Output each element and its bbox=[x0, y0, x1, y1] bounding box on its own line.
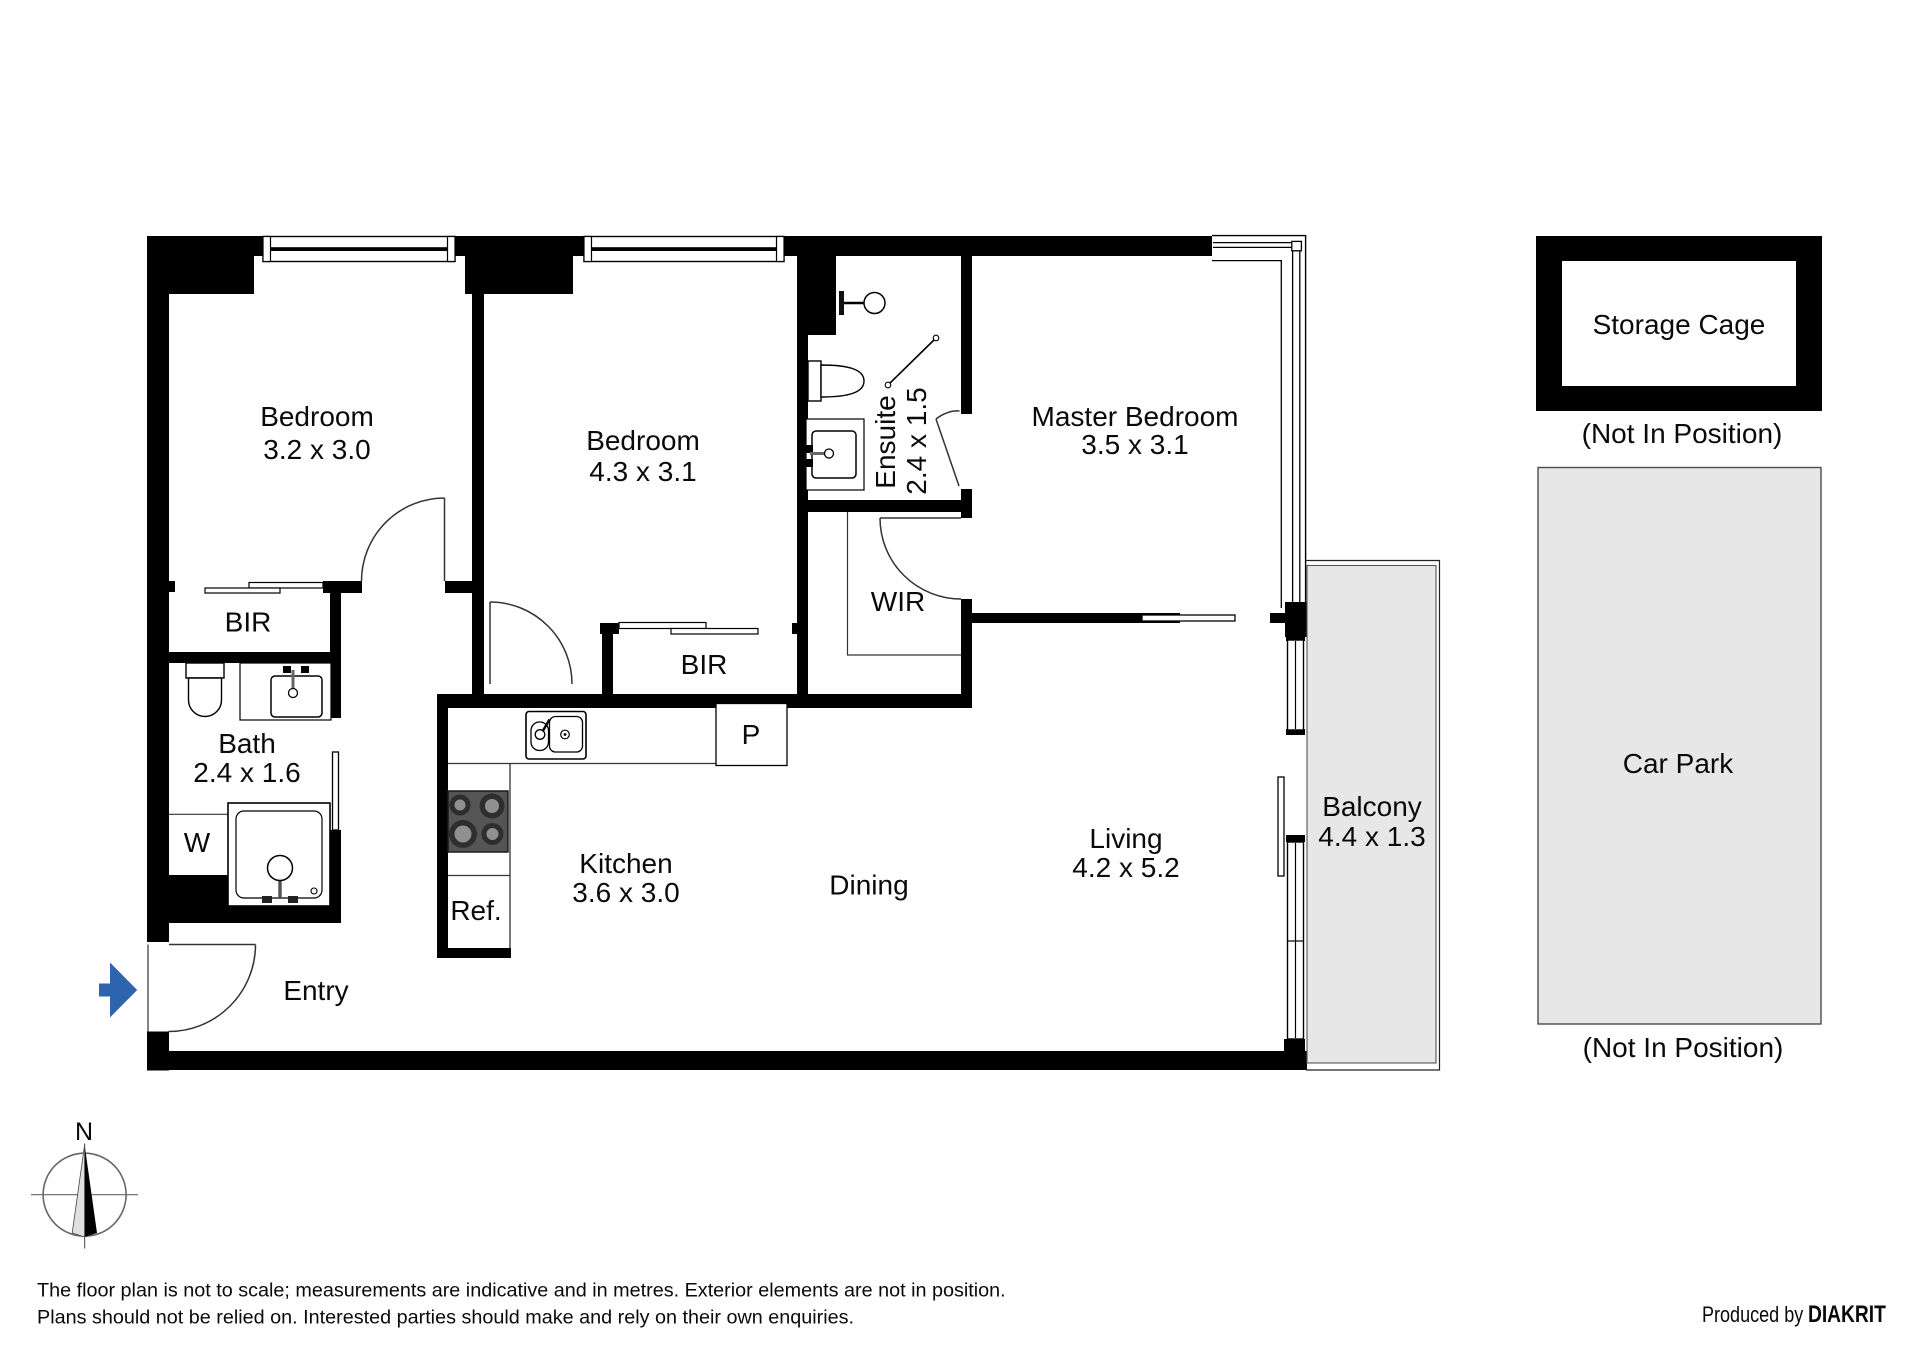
svg-text:Plans should not be relied on.: Plans should not be relied on. Intereste… bbox=[37, 1307, 854, 1329]
svg-text:BIR: BIR bbox=[225, 607, 272, 638]
svg-text:4.4 x 1.3: 4.4 x 1.3 bbox=[1318, 821, 1425, 852]
svg-text:Kitchen: Kitchen bbox=[579, 848, 672, 879]
svg-text:WIR: WIR bbox=[871, 586, 925, 617]
svg-text:Dining: Dining bbox=[829, 870, 908, 901]
svg-text:Balcony: Balcony bbox=[1322, 791, 1422, 822]
svg-text:Produced by: Produced by bbox=[1702, 1303, 1804, 1327]
svg-text:Ensuite: Ensuite bbox=[870, 395, 901, 488]
svg-text:(Not In Position): (Not In Position) bbox=[1583, 1032, 1784, 1063]
svg-text:Master Bedroom: Master Bedroom bbox=[1032, 401, 1239, 432]
svg-text:P: P bbox=[742, 719, 761, 750]
svg-text:The floor plan is not to scale: The floor plan is not to scale; measurem… bbox=[37, 1280, 1006, 1302]
svg-text:Ref.: Ref. bbox=[450, 895, 501, 926]
svg-text:N: N bbox=[75, 1118, 93, 1146]
svg-text:(Not In Position): (Not In Position) bbox=[1582, 418, 1783, 449]
svg-text:Bedroom: Bedroom bbox=[586, 425, 700, 456]
svg-text:4.3 x 3.1: 4.3 x 3.1 bbox=[589, 456, 696, 487]
svg-text:4.2 x 5.2: 4.2 x 5.2 bbox=[1072, 852, 1179, 883]
svg-text:2.4 x 1.5: 2.4 x 1.5 bbox=[901, 387, 932, 494]
svg-text:Storage Cage: Storage Cage bbox=[1593, 309, 1766, 340]
svg-text:3.6 x 3.0: 3.6 x 3.0 bbox=[572, 877, 679, 908]
svg-text:Entry: Entry bbox=[283, 975, 348, 1006]
svg-text:DIAKRIT: DIAKRIT bbox=[1808, 1300, 1886, 1328]
svg-text:3.5 x 3.1: 3.5 x 3.1 bbox=[1081, 429, 1188, 460]
svg-text:W: W bbox=[184, 827, 211, 858]
svg-text:Car Park: Car Park bbox=[1623, 748, 1734, 779]
svg-text:2.4 x 1.6: 2.4 x 1.6 bbox=[193, 757, 300, 788]
svg-text:Living: Living bbox=[1089, 823, 1162, 854]
svg-text:Bath: Bath bbox=[218, 728, 276, 759]
svg-text:Bedroom: Bedroom bbox=[260, 401, 374, 432]
svg-text:BIR: BIR bbox=[681, 649, 728, 680]
svg-text:3.2 x 3.0: 3.2 x 3.0 bbox=[263, 434, 370, 465]
